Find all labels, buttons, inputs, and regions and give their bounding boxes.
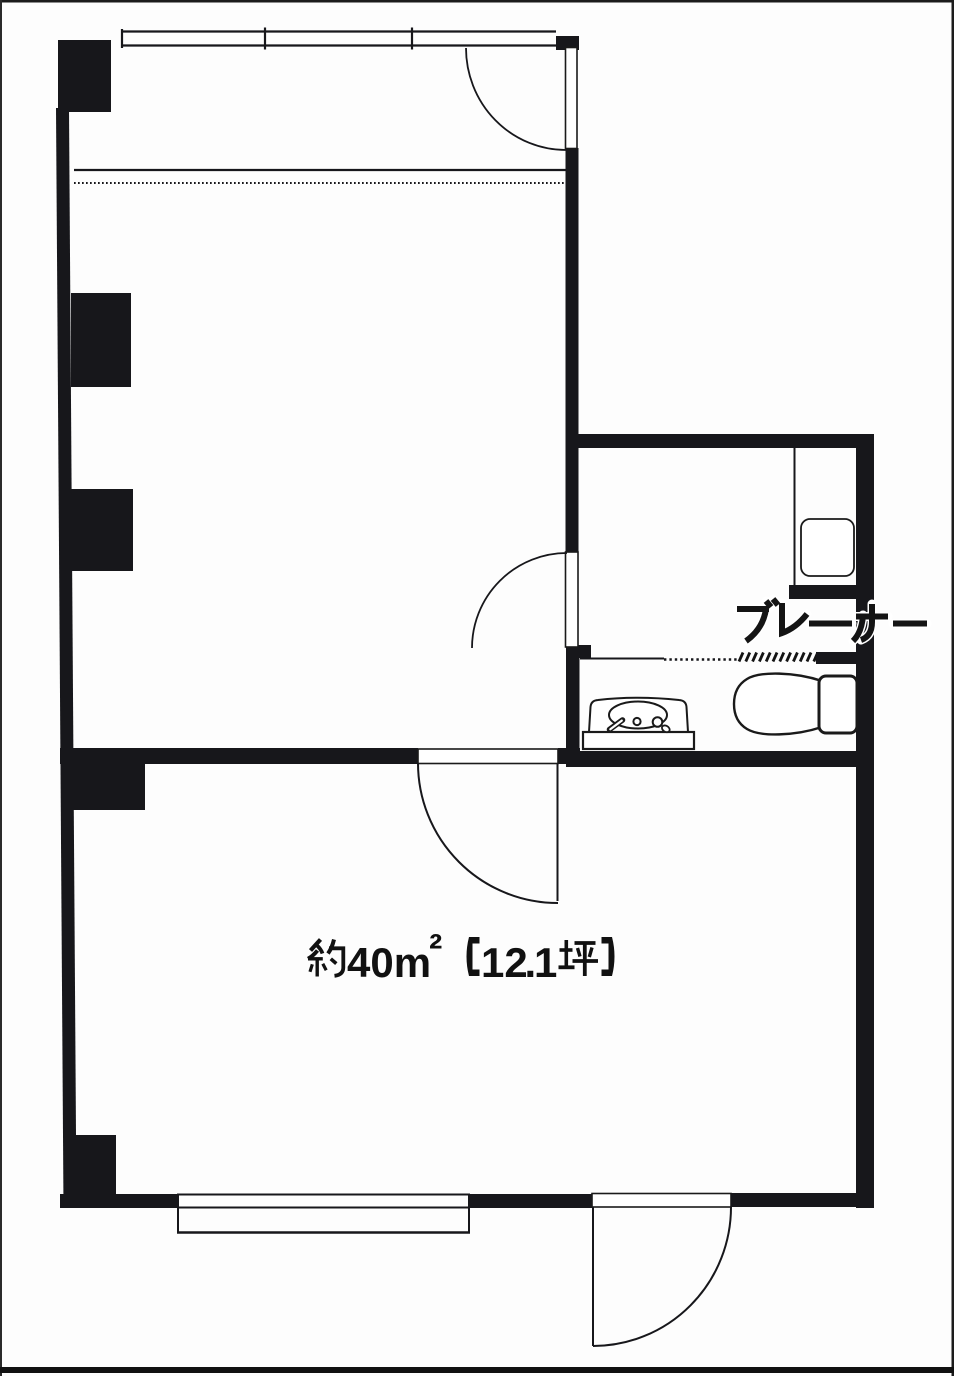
svg-text:²: ² [429,927,442,971]
svg-text:12: 12 [481,939,528,986]
svg-text:1: 1 [534,939,557,986]
svg-text:40m: 40m [347,939,431,986]
